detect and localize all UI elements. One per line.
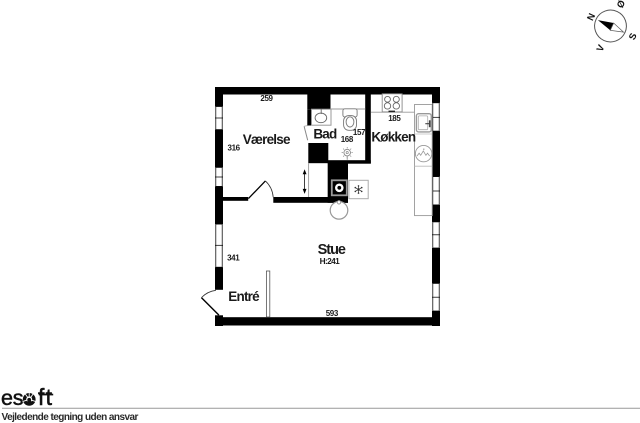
svg-text:185: 185 — [388, 114, 401, 123]
svg-text:316: 316 — [228, 143, 241, 152]
svg-text:Køkken: Køkken — [371, 130, 416, 145]
svg-text:341: 341 — [227, 254, 240, 263]
svg-text:259: 259 — [260, 94, 273, 103]
svg-text:ft: ft — [38, 384, 53, 410]
svg-text:Bad: Bad — [313, 127, 337, 142]
svg-text:593: 593 — [326, 309, 339, 318]
svg-text:es: es — [1, 386, 23, 410]
svg-text:H:241: H:241 — [320, 256, 341, 266]
svg-text:Entré: Entré — [228, 289, 260, 304]
svg-text:Værelse: Værelse — [243, 132, 291, 147]
svg-text:157: 157 — [353, 128, 366, 137]
svg-text:168: 168 — [341, 135, 354, 144]
svg-text:Vejledende tegning uden ansvar: Vejledende tegning uden ansvar — [2, 412, 139, 423]
